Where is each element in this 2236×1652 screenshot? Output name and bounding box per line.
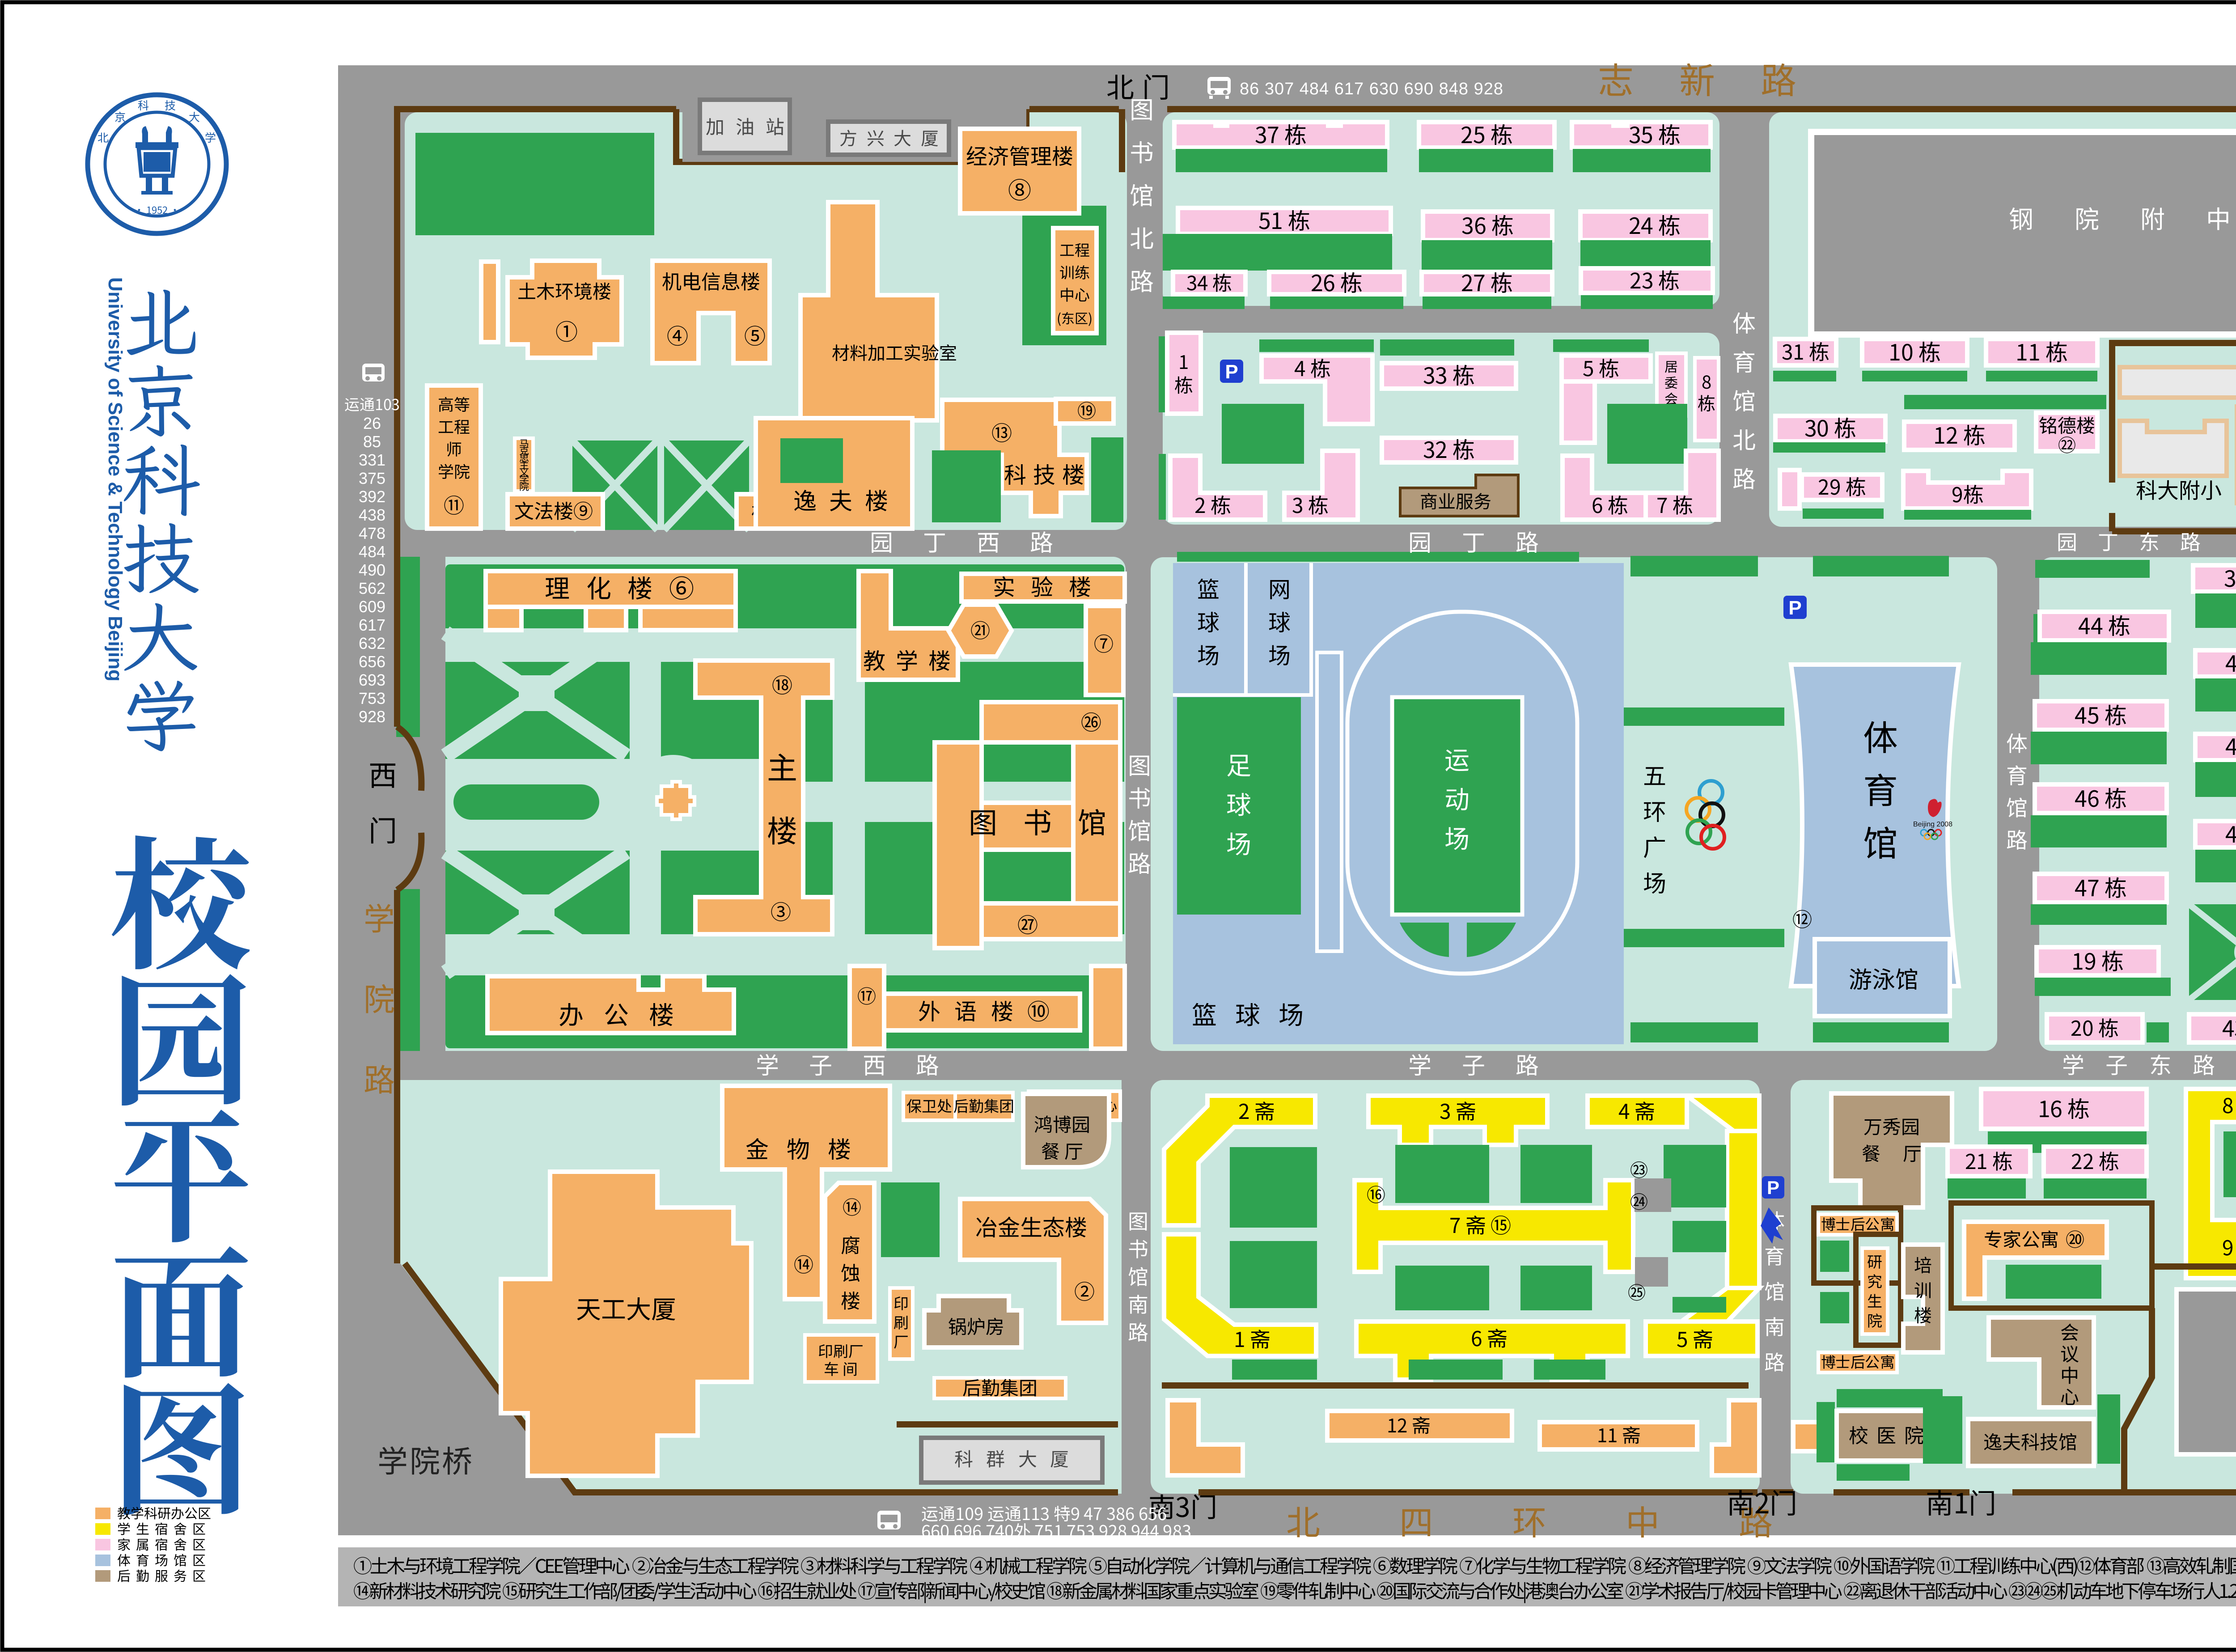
svg-text:928: 928 <box>359 707 385 726</box>
svg-text:478: 478 <box>359 524 385 542</box>
svg-text:490: 490 <box>359 561 385 579</box>
svg-text:617: 617 <box>359 616 385 634</box>
svg-text:609: 609 <box>359 597 385 616</box>
svg-text:562: 562 <box>359 579 385 597</box>
svg-text:P: P <box>1788 597 1801 619</box>
svg-text:26: 26 <box>363 414 381 432</box>
svg-text:656: 656 <box>359 652 385 671</box>
svg-text:392: 392 <box>359 487 385 506</box>
svg-text:693: 693 <box>359 671 385 689</box>
svg-text:P: P <box>1225 361 1238 383</box>
svg-text:331: 331 <box>359 451 385 469</box>
svg-text:P: P <box>1767 1177 1779 1198</box>
svg-text:85: 85 <box>363 432 381 451</box>
svg-text:University of Science & Techno: University of Science & Technology Beiji… <box>104 277 126 682</box>
svg-text:632: 632 <box>359 634 385 652</box>
svg-text:86 307 484 617 630 690 848 928: 86 307 484 617 630 690 848 928 <box>1240 80 1503 98</box>
svg-text:Beijing 2008: Beijing 2008 <box>1913 821 1952 828</box>
svg-text:753: 753 <box>359 689 385 707</box>
svg-text:484: 484 <box>359 542 385 561</box>
svg-text:438: 438 <box>359 506 385 524</box>
svg-text:375: 375 <box>359 469 385 487</box>
